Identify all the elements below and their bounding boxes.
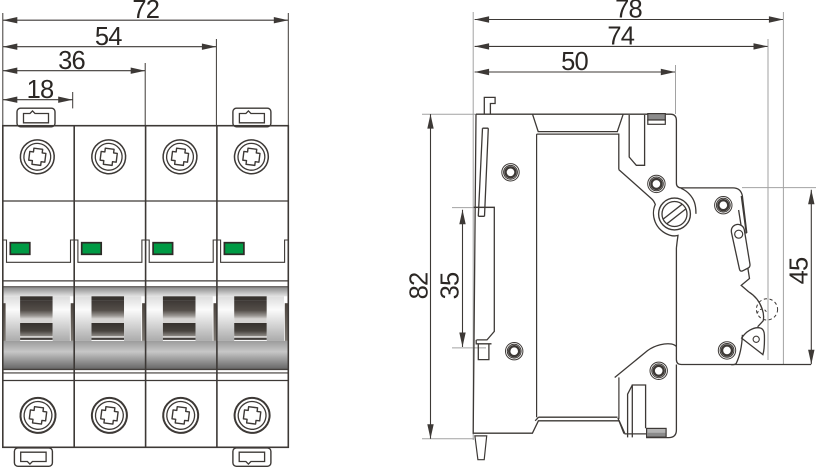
svg-text:54: 54 xyxy=(95,23,122,51)
svg-text:72: 72 xyxy=(132,0,159,24)
svg-text:74: 74 xyxy=(607,23,634,51)
svg-text:78: 78 xyxy=(615,0,642,24)
svg-text:35: 35 xyxy=(437,272,465,299)
svg-text:82: 82 xyxy=(405,273,433,300)
svg-text:18: 18 xyxy=(27,76,54,104)
svg-text:50: 50 xyxy=(561,48,588,76)
svg-text:36: 36 xyxy=(58,47,85,75)
svg-text:45: 45 xyxy=(785,257,813,284)
